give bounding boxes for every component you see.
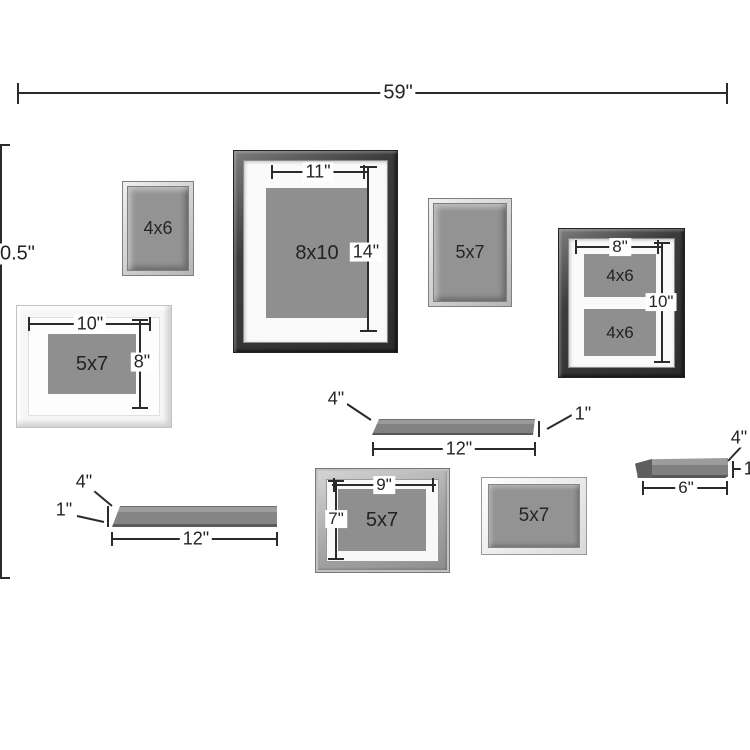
frame-double-height-label: 10": [646, 293, 677, 311]
frame-8x10-width-label: 11": [302, 163, 333, 182]
frame-8x10-height-label: 14": [350, 243, 382, 262]
overall-height-label: 0.5": [0, 244, 38, 265]
overall-width-label: 59": [380, 83, 415, 104]
frame-double-width-label: 8": [609, 238, 631, 256]
overall-width-dimension: [18, 83, 727, 104]
shelf-middle-length-label: 12": [443, 440, 475, 459]
shelf-bottom-left-depth-label: 4": [73, 473, 95, 492]
shelf-middle-depth-label: 4": [325, 390, 347, 409]
frame-gray-width-label: 9": [373, 476, 395, 494]
shelf-bottom-left-dimensions: [77, 491, 277, 546]
shelf-right-thickness-label: 1": [741, 460, 750, 479]
gallery-wall-dimension-diagram: 4x6 8x10 5x7 4x6 4x6 5x7 5x7: [0, 0, 750, 750]
frame-white-width-label: 10": [74, 315, 106, 334]
shelf-right-depth-label: 4": [728, 429, 750, 448]
shelf-middle-thickness-label: 1": [572, 405, 594, 424]
shelf-bottom-left-thickness-label: 1": [53, 501, 75, 520]
dimension-lines: [0, 0, 750, 750]
frame-white-height-label: 8": [131, 353, 153, 372]
shelf-bottom-left-length-label: 12": [180, 530, 212, 549]
frame-gray-height-label: 7": [325, 510, 347, 528]
shelf-right-length-label: 6": [675, 479, 697, 497]
overall-height-dimension: [0, 145, 10, 578]
